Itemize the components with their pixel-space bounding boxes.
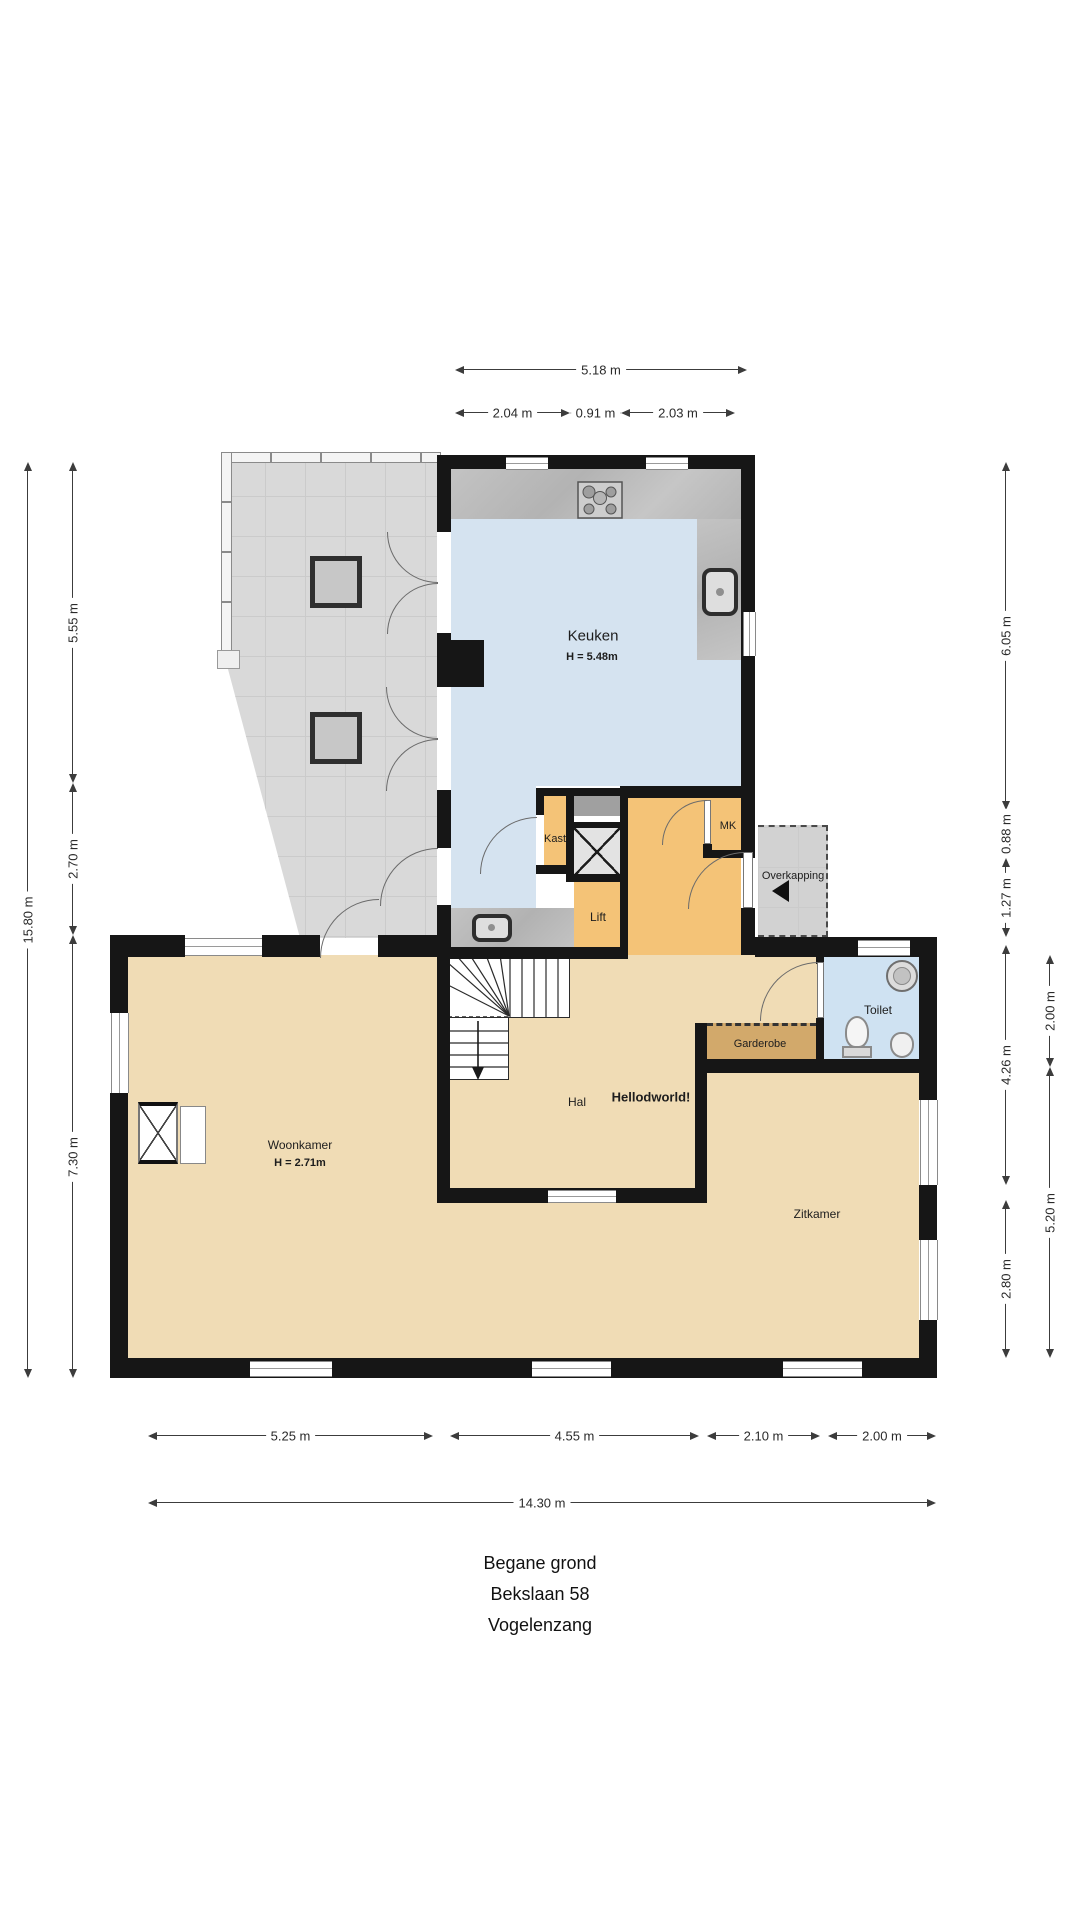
shaft-void [574,828,620,876]
wall [437,455,755,469]
window [743,612,756,656]
wall [378,935,450,957]
wall [703,790,712,798]
terrace-glass-wall-left [221,452,232,660]
dim-left-c: 7.30 m [67,935,79,1378]
room-label-toilet: Toilet [864,1003,892,1017]
wall [620,788,628,957]
fireplace-hearth [180,1106,206,1164]
wall [919,1185,937,1240]
window [506,457,548,470]
room-label-keuken: Keuken [568,628,619,645]
window [111,1013,129,1093]
window [532,1361,611,1377]
dim-right-b: 0.88 m [1000,810,1012,858]
room-height-woonkamer: H = 2.71m [274,1157,326,1169]
staircase [448,955,570,1081]
room-label-overkapping: Overkapping [762,870,824,882]
dim-left-a: 5.55 m [67,462,79,783]
wall [919,937,937,1100]
hal-note-label: Hellodworld! [612,1090,691,1105]
wall [566,788,574,882]
interior-window [548,1190,616,1203]
window [250,1361,332,1377]
entrance-arrow-icon [772,880,789,902]
dim-right-a: 6.05 m [1000,462,1012,810]
fireplace [138,1102,178,1164]
wall [437,790,451,848]
dim-top-total: 5.18 m [455,364,747,376]
wall [536,788,544,815]
terrace-glass-wall-top [221,452,441,463]
wall [566,874,628,882]
room-height-keuken: H = 5.48m [566,651,618,663]
skylight [310,712,362,764]
window [920,1100,938,1185]
wall [437,633,451,687]
dim-bottom-d: 2.00 m [828,1430,936,1442]
window [646,457,688,470]
room-label-hal: Hal [568,1095,586,1109]
bidet-icon [890,1032,914,1058]
wall [437,947,628,959]
wall [262,935,320,957]
dim-bottom-total: 14.30 m [148,1497,936,1509]
dim-bottom-b: 4.55 m [450,1430,699,1442]
room-label-kast: Kast [544,833,566,845]
window [783,1361,862,1377]
kitchen-counter-bottom [451,908,584,947]
wall [110,1093,128,1378]
sink-drain-icon [716,588,724,596]
wall [536,788,628,796]
wall [110,935,128,1013]
toilet-tank-icon [842,1046,872,1058]
wall [741,908,755,955]
dim-top-a: 2.04 m [455,407,570,419]
wall [695,1023,707,1188]
plan-title-floor: Begane grond [0,1548,1080,1579]
wall [741,798,755,852]
dim-right-e: 2.80 m [1000,1200,1012,1358]
plan-title-block: Begane grond Bekslaan 58 Vogelenzang [0,1548,1080,1641]
toilet-bowl-icon [845,1016,869,1048]
dim-right-d: 4.26 m [1000,945,1012,1185]
window [920,1240,938,1320]
wall [437,455,451,532]
room-label-mk: MK [720,820,737,832]
dim-right-outer-a: 2.00 m [1044,955,1056,1067]
dim-left-total: 15.80 m [22,462,34,1378]
room-label-lift: Lift [590,910,606,924]
washbasin-inner-icon [893,967,911,985]
wall [816,1018,824,1063]
dim-right-c: 1.27 m [1000,858,1012,937]
room-label-garderobe: Garderobe [734,1038,787,1050]
dim-top-c: 2.03 m [621,407,735,419]
dim-bottom-a: 5.25 m [148,1430,433,1442]
room-label-zitkamer: Zitkamer [794,1207,841,1221]
stove-icon [577,481,623,519]
wall [566,822,628,828]
room-label-woonkamer: Woonkamer [268,1138,332,1152]
dim-top-b: 0.91 m [570,407,621,419]
floorplan-page: Keuken H = 5.48m Kast Lift MK Overkappin… [0,0,1080,1920]
sink-drain-icon [488,924,495,931]
terrace-post [217,650,240,669]
dim-left-b: 2.70 m [67,783,79,935]
skylight [310,556,362,608]
wall [919,1320,937,1378]
wall [695,1059,937,1073]
dim-right-outer-b: 5.20 m [1044,1067,1056,1358]
dim-bottom-c: 2.10 m [707,1430,820,1442]
window [858,940,910,956]
plan-title-city: Vogelenzang [0,1610,1080,1641]
window [185,938,262,956]
plan-title-street: Bekslaan 58 [0,1579,1080,1610]
wall [437,957,450,1203]
